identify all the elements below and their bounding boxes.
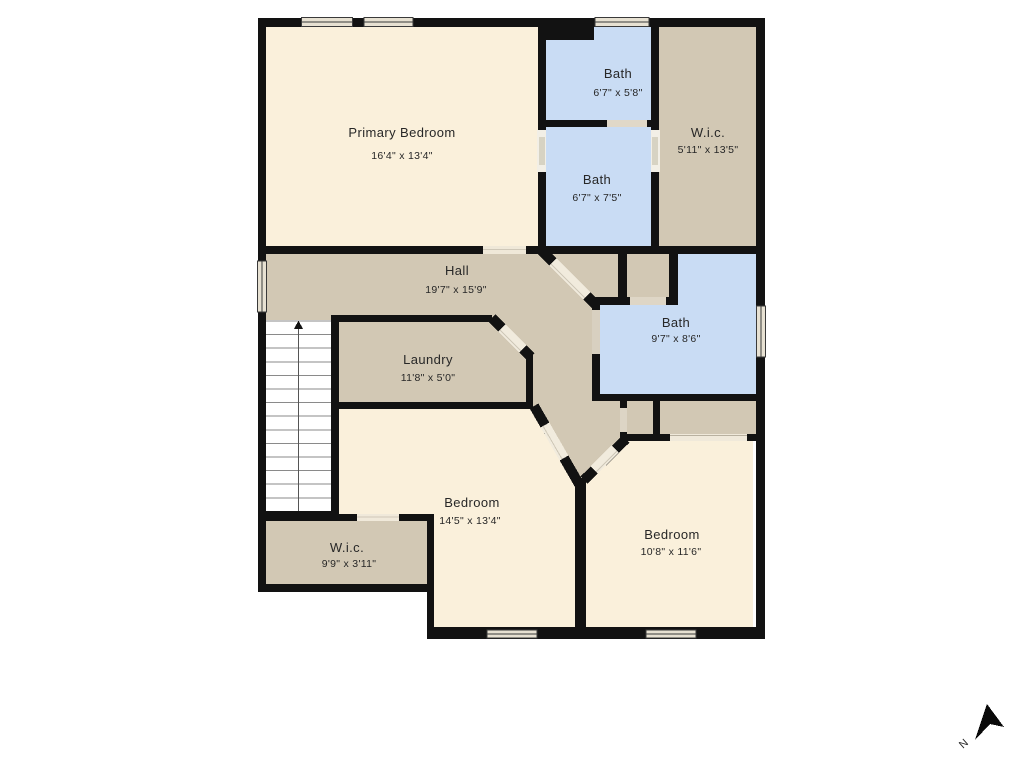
svg-text:6'7" x 7'5": 6'7" x 7'5"	[572, 192, 621, 204]
svg-text:Bath: Bath	[604, 66, 632, 81]
svg-text:Bedroom: Bedroom	[644, 527, 700, 542]
svg-text:9'7" x 8'6": 9'7" x 8'6"	[651, 333, 700, 345]
svg-text:Laundry: Laundry	[403, 352, 453, 367]
svg-text:16'4" x 13'4": 16'4" x 13'4"	[371, 150, 433, 162]
svg-text:5'11" x 13'5": 5'11" x 13'5"	[678, 144, 739, 156]
svg-text:W.i.c.: W.i.c.	[330, 540, 364, 555]
svg-text:9'9" x 3'11": 9'9" x 3'11"	[322, 558, 377, 570]
svg-text:Bath: Bath	[662, 315, 690, 330]
svg-text:19'7" x 15'9": 19'7" x 15'9"	[425, 284, 487, 296]
svg-text:14'5" x 13'4": 14'5" x 13'4"	[439, 515, 501, 527]
svg-text:Hall: Hall	[445, 263, 469, 278]
svg-text:6'7" x 5'8": 6'7" x 5'8"	[593, 87, 642, 99]
svg-text:W.i.c.: W.i.c.	[691, 125, 725, 140]
svg-text:10'8" x 11'6": 10'8" x 11'6"	[641, 546, 702, 558]
svg-text:11'8" x 5'0": 11'8" x 5'0"	[401, 372, 456, 384]
svg-text:Bath: Bath	[583, 172, 611, 187]
svg-text:Bedroom: Bedroom	[444, 495, 500, 510]
svg-text:Primary Bedroom: Primary Bedroom	[348, 125, 455, 140]
